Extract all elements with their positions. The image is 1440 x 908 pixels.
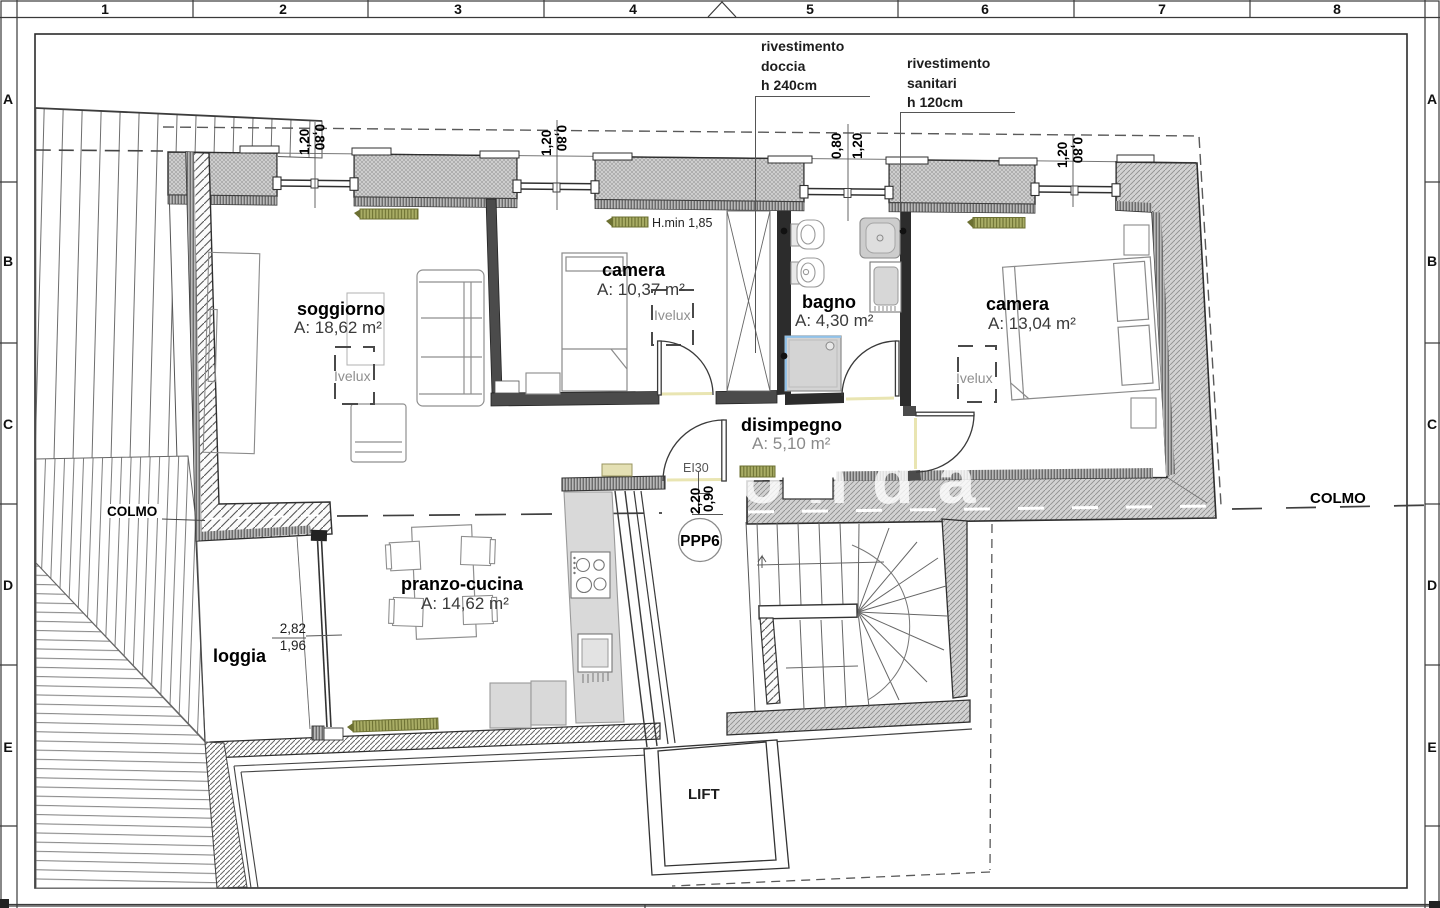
svg-text:Ivelux: Ivelux	[654, 307, 691, 323]
svg-text:D: D	[1427, 577, 1437, 593]
svg-text:loggia: loggia	[213, 646, 267, 666]
svg-text:A: 5,10 m²: A: 5,10 m²	[752, 434, 831, 453]
svg-text:A: 4,30 m²: A: 4,30 m²	[795, 311, 874, 330]
svg-text:sanitari: sanitari	[907, 75, 957, 91]
svg-text:1,20: 1,20	[539, 130, 554, 156]
svg-text:A: 18,62 m²: A: 18,62 m²	[294, 318, 382, 337]
svg-text:h 240cm: h 240cm	[761, 77, 817, 93]
svg-text:EI30: EI30	[683, 461, 709, 475]
svg-text:Ivelux: Ivelux	[956, 370, 993, 386]
svg-text:0,80: 0,80	[1070, 137, 1085, 163]
svg-text:onda: onda	[741, 442, 999, 518]
svg-text:h 120cm: h 120cm	[907, 94, 963, 110]
svg-text:bagno: bagno	[802, 292, 856, 312]
svg-text:1,20: 1,20	[297, 129, 312, 155]
svg-text:5: 5	[806, 1, 814, 17]
svg-text:A: 13,04 m²: A: 13,04 m²	[988, 314, 1076, 333]
svg-text:COLMO: COLMO	[107, 504, 157, 519]
svg-text:disimpegno: disimpegno	[741, 415, 842, 435]
svg-text:0,80: 0,80	[829, 133, 844, 159]
svg-text:0,80: 0,80	[312, 124, 327, 150]
svg-text:2,82: 2,82	[280, 621, 306, 636]
svg-text:D: D	[3, 577, 13, 593]
svg-text:3: 3	[454, 1, 462, 17]
svg-text:B: B	[3, 253, 13, 269]
svg-text:1,20: 1,20	[850, 133, 865, 159]
svg-text:E: E	[1427, 739, 1436, 755]
svg-text:0,80: 0,80	[554, 125, 569, 151]
svg-text:COLMO: COLMO	[1310, 490, 1366, 507]
svg-text:pranzo-cucina: pranzo-cucina	[401, 574, 524, 594]
svg-text:C: C	[1427, 416, 1437, 432]
svg-text:B: B	[1427, 253, 1437, 269]
svg-text:1,96: 1,96	[280, 638, 306, 653]
svg-text:camera: camera	[986, 294, 1050, 314]
svg-text:4: 4	[629, 1, 637, 17]
svg-text:A: A	[3, 91, 13, 107]
svg-text:0,90: 0,90	[701, 486, 716, 512]
svg-text:rivestimento: rivestimento	[761, 38, 844, 54]
svg-text:A: 10,37 m²: A: 10,37 m²	[597, 280, 685, 299]
svg-text:1,20: 1,20	[1055, 142, 1070, 168]
svg-text:2: 2	[279, 1, 287, 17]
svg-text:soggiorno: soggiorno	[297, 299, 385, 319]
svg-text:C: C	[3, 416, 13, 432]
svg-text:A: A	[1427, 91, 1437, 107]
svg-text:A: 14,62 m²: A: 14,62 m²	[421, 594, 509, 613]
svg-text:7: 7	[1158, 1, 1166, 17]
svg-text:camera: camera	[602, 260, 666, 280]
svg-text:1: 1	[101, 1, 109, 17]
svg-text:PPP6: PPP6	[680, 533, 720, 550]
svg-text:LIFT: LIFT	[688, 786, 720, 803]
svg-text:8: 8	[1333, 1, 1341, 17]
svg-text:doccia: doccia	[761, 58, 806, 74]
svg-text:E: E	[3, 739, 12, 755]
svg-text:rivestimento: rivestimento	[907, 55, 990, 71]
svg-text:H.min 1,85: H.min 1,85	[652, 216, 712, 230]
svg-text:Ivelux: Ivelux	[334, 368, 371, 384]
svg-text:6: 6	[981, 1, 989, 17]
